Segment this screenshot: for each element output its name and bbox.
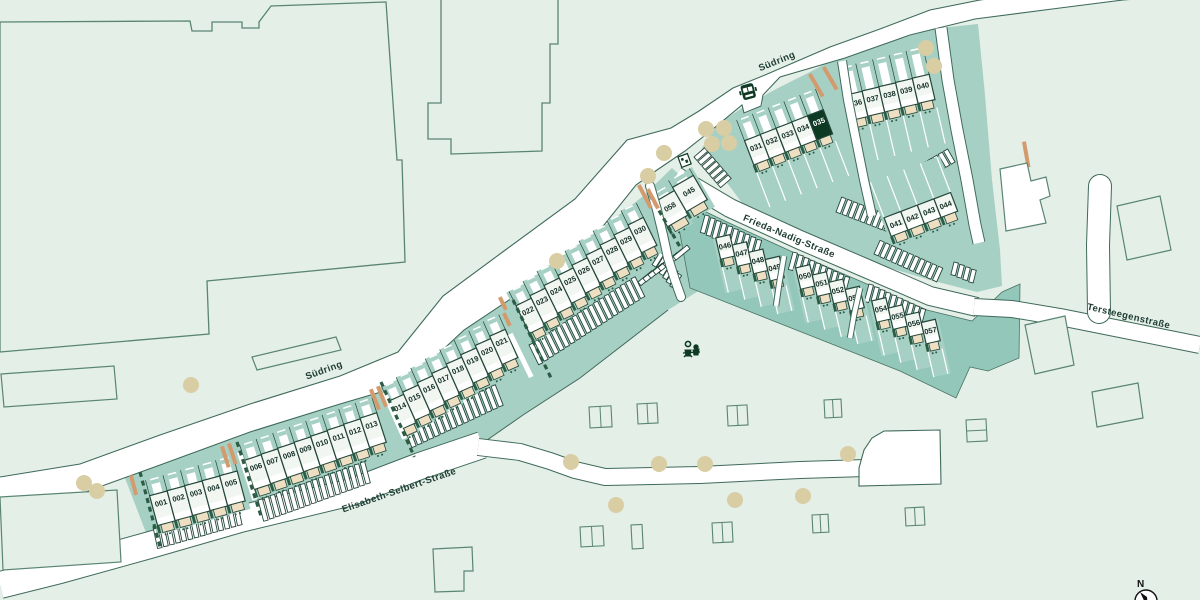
svg-text:N: N: [1137, 579, 1144, 590]
